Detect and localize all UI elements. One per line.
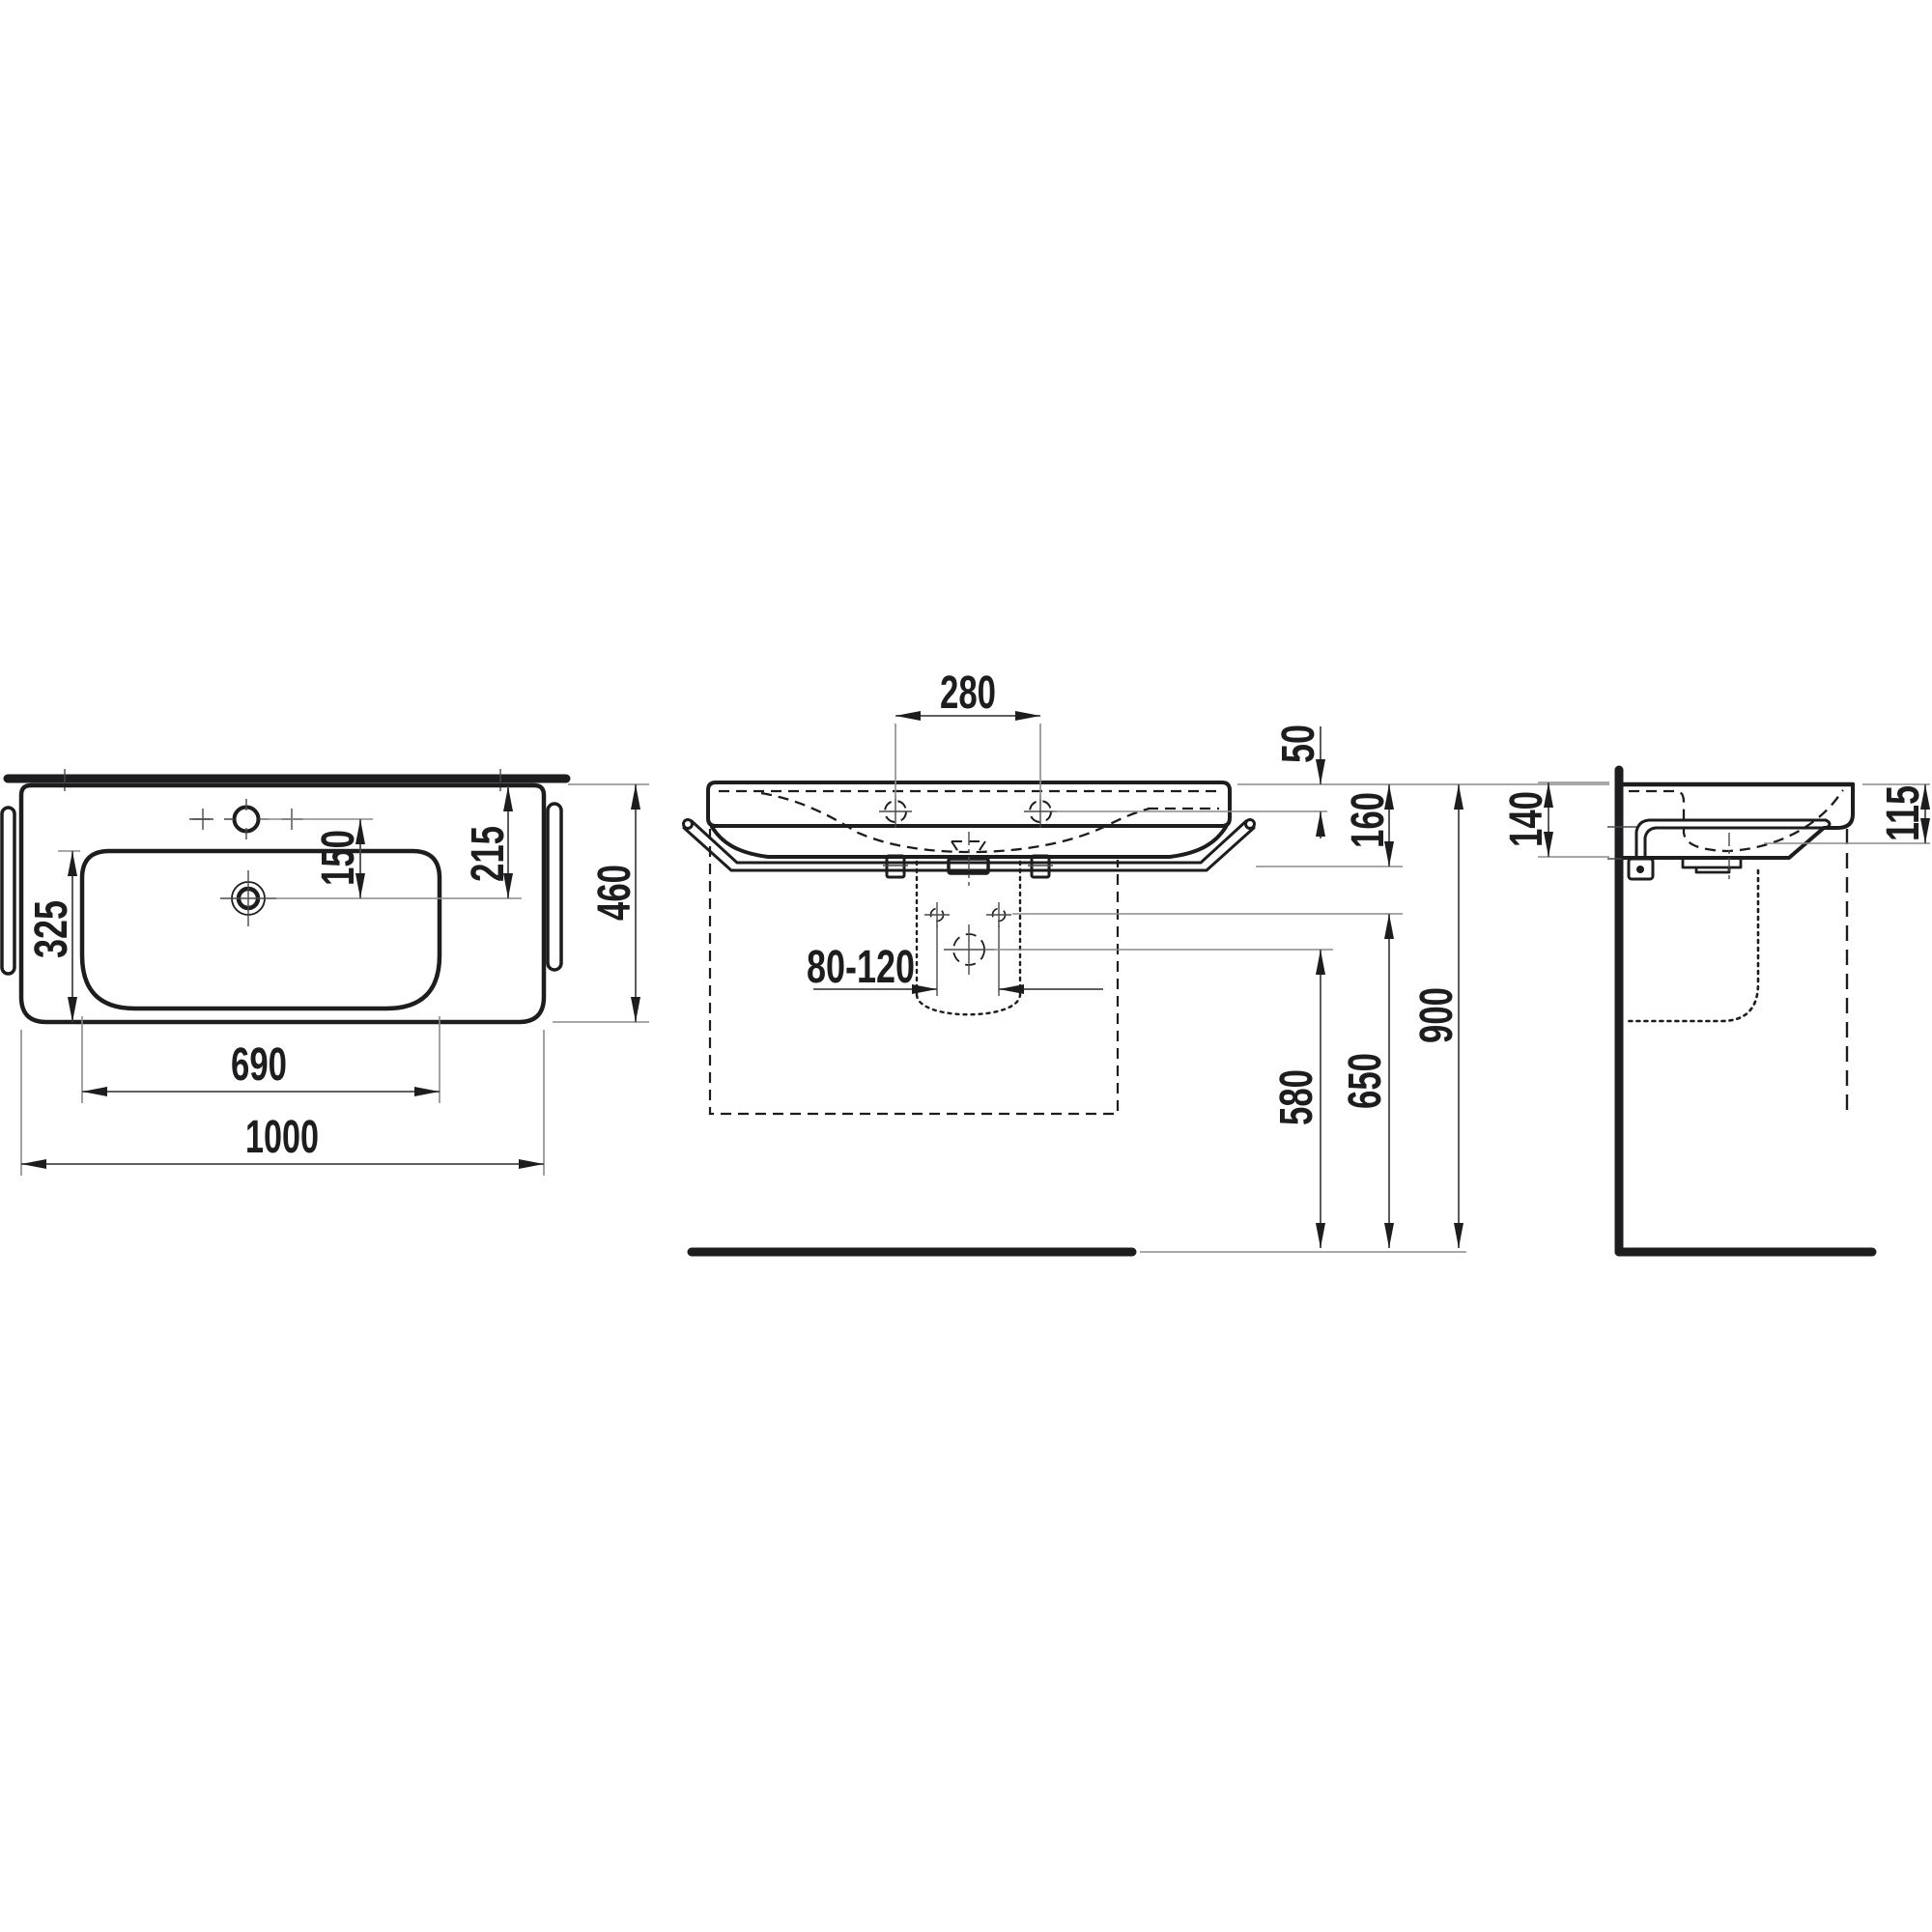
- dim-label-wall-thickness: 140: [1501, 791, 1552, 847]
- dim-label-depth: 460: [589, 865, 640, 921]
- side-drain-fitting: [1683, 858, 1741, 872]
- front-bolt-holes: [924, 902, 1011, 927]
- dim-label-rim-height: 900: [1411, 987, 1463, 1043]
- technical-drawing: 325 150 215 460 690 1000: [0, 0, 1932, 1932]
- front-tap-holes: [879, 795, 1057, 828]
- plan-towel-bar-left: [2, 808, 14, 974]
- dim-label-rear-to-drain: 215: [463, 826, 514, 882]
- plan-basin-outline: [21, 785, 544, 1022]
- dim-label-bowl-depth: 325: [26, 900, 77, 958]
- side-view: 140 115: [1501, 770, 1930, 1252]
- dim-label-rim-to-rail: 160: [1343, 792, 1394, 848]
- plan-towel-bar-right: [548, 804, 561, 970]
- side-waste-pipe: [1627, 870, 1758, 1021]
- dim-label-bolt-spacing: 80-120: [807, 942, 915, 993]
- dim-label-front-apron: 115: [1878, 785, 1929, 841]
- dim-label-tap-to-drain: 150: [313, 830, 364, 886]
- front-fixing-bolt-left: [883, 856, 908, 877]
- top-view: 325 150 215 460 690 1000: [2, 769, 649, 1176]
- dim-label-rim-to-tap: 50: [1273, 724, 1324, 763]
- front-view: 280 80-120 50 160 580 650 900: [684, 668, 1931, 1252]
- dim-label-bowl-width: 690: [231, 1039, 287, 1091]
- dim-label-bolt-height: 650: [1340, 1053, 1391, 1109]
- front-fixing-bolt-right: [1028, 856, 1053, 877]
- dim-label-drain-height: 580: [1271, 1069, 1322, 1125]
- plan-bowl-outline: [82, 851, 440, 1009]
- dim-label-overall-width: 1000: [245, 1112, 319, 1163]
- plan-drain: [220, 870, 276, 926]
- drawing-sheet: 325 150 215 460 690 1000: [0, 0, 1932, 1932]
- dim-label-tap-spacing: 280: [940, 668, 996, 719]
- front-basin-plate: [708, 782, 1230, 826]
